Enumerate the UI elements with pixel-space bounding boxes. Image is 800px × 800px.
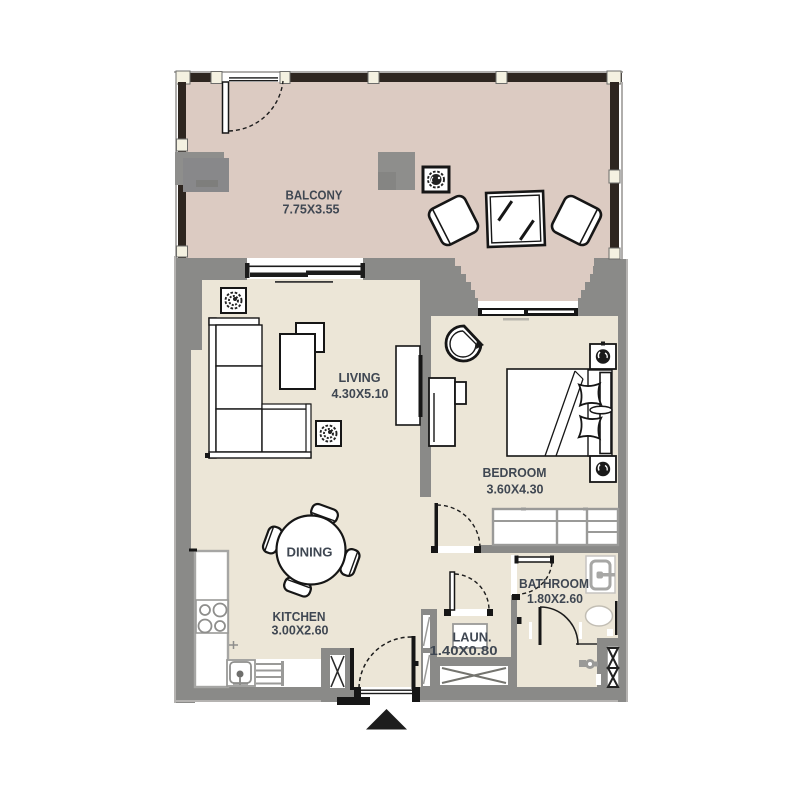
svg-text:BEDROOM: BEDROOM xyxy=(483,465,547,480)
svg-text:1.80X2.60: 1.80X2.60 xyxy=(527,592,583,606)
svg-text:LAUN.: LAUN. xyxy=(453,631,492,645)
svg-text:1.40X0.80: 1.40X0.80 xyxy=(430,644,498,658)
svg-text:KITCHEN: KITCHEN xyxy=(273,609,326,624)
svg-text:7.75X3.55: 7.75X3.55 xyxy=(283,203,340,217)
svg-text:DINING: DINING xyxy=(287,545,333,560)
svg-text:BALCONY: BALCONY xyxy=(286,188,343,203)
svg-text:4.30X5.10: 4.30X5.10 xyxy=(332,387,389,401)
svg-text:BATHROOM: BATHROOM xyxy=(519,576,589,591)
svg-text:3.00X2.60: 3.00X2.60 xyxy=(272,624,329,638)
svg-text:LIVING: LIVING xyxy=(339,370,381,385)
svg-text:3.60X4.30: 3.60X4.30 xyxy=(487,483,544,497)
